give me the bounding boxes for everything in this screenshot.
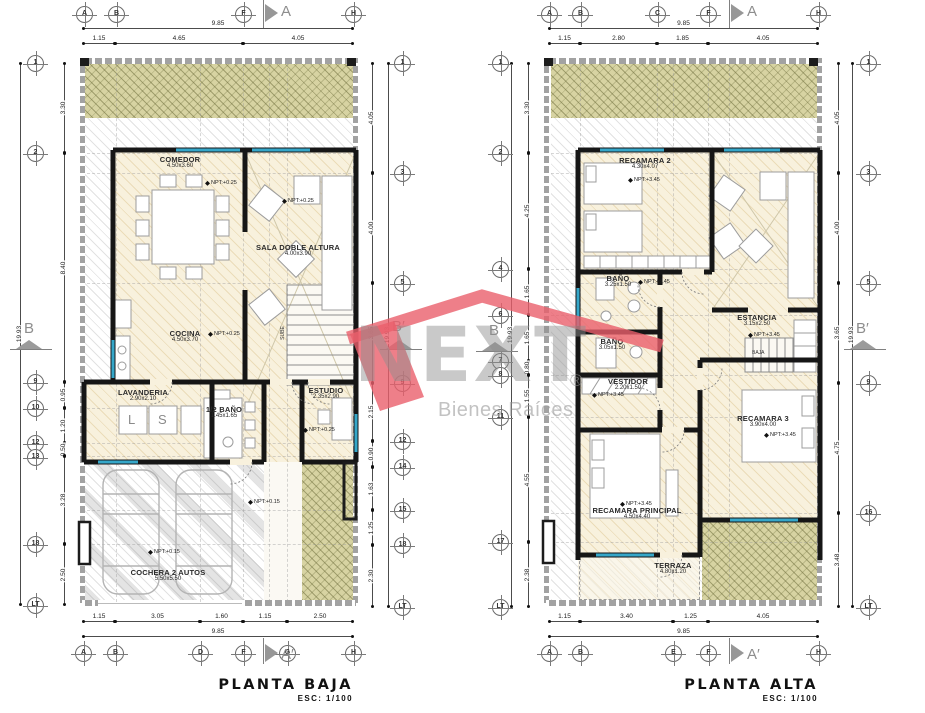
dim: 1.55 [528, 375, 529, 417]
dim: 4.05 [708, 621, 818, 622]
dim: 0.90 [372, 441, 373, 467]
room-label: COCINA4.50x3.70 [170, 329, 201, 343]
section-marker-icon [482, 342, 508, 351]
floor-plan-sheet: A B F H A B D F G H 1 2 9 10 12 13 18 LT… [0, 0, 925, 713]
dim: 3.28 [64, 456, 65, 544]
dim: 3.65 [372, 283, 373, 383]
grid-marker: LT [394, 599, 411, 616]
lot-wall-right [353, 58, 358, 606]
section-marker-icon [386, 340, 412, 349]
dim: 3.30 [528, 63, 529, 153]
grid-marker: 15 [394, 502, 411, 519]
grid-marker: A [75, 645, 92, 662]
lot-wall-left [80, 58, 85, 606]
grid-marker: 8 [492, 367, 509, 384]
dryer-label: S [158, 412, 167, 427]
dim: 9.85 [83, 636, 353, 637]
section-line [729, 638, 730, 664]
grid-marker: 12 [394, 433, 411, 450]
section-label: B [24, 320, 34, 337]
npt-marker: NPT:+3.45 [638, 278, 670, 286]
grid-marker: 1 [860, 55, 877, 72]
room-label: RECAMARA 33.90x4.00 [737, 414, 789, 428]
garage-opening [98, 603, 242, 604]
grid-marker: 2 [27, 145, 44, 162]
room-label: 1/2 BAÑO1.45x1.65 [206, 405, 242, 419]
grid-marker: H [810, 6, 827, 23]
npt-marker: NPT:+3.45 [620, 500, 652, 508]
grid-marker: 1 [492, 55, 509, 72]
grid-marker: 5 [860, 275, 877, 292]
section-label: B′ [856, 320, 869, 337]
dim: 9.85 [549, 28, 818, 29]
room-label: RECAMARA PRINCIPAL4.50x4.40 [592, 506, 681, 520]
grid-marker: D [192, 645, 209, 662]
section-marker-icon [16, 340, 42, 349]
rear-garden [302, 463, 356, 600]
grid-marker: 17 [492, 534, 509, 551]
section-label: A′ [281, 646, 294, 663]
grid-marker: LT [27, 597, 44, 614]
grid-marker: 13 [27, 449, 44, 466]
section-line [476, 351, 518, 352]
dim: 1.85 [657, 43, 708, 44]
npt-marker: NPT:+3.45 [628, 176, 660, 184]
section-marker-icon [265, 4, 278, 22]
plan-scale: ESC: 1/100 [763, 694, 818, 703]
npt-marker: NPT:+3.45 [764, 431, 796, 439]
grid-marker: 16 [860, 505, 877, 522]
grid-marker: 3 [394, 165, 411, 182]
room-label: ESTANCIA3.15x2.50 [737, 313, 776, 327]
dim: 1.25 [673, 621, 708, 622]
grid-marker: H [810, 645, 827, 662]
grid-marker: B [572, 6, 589, 23]
npt-marker: NPT:+0.15 [148, 548, 180, 556]
dim: 1.63 [372, 467, 373, 510]
dim: 2.15 [372, 383, 373, 441]
dim: 1.65 [528, 315, 529, 361]
dim: 1.20 [64, 408, 65, 443]
npt-marker: NPT:+3.45 [592, 391, 624, 399]
grid-marker: B [108, 6, 125, 23]
dim: 1.15 [243, 621, 287, 622]
lot-wall-left [544, 58, 549, 606]
grid-marker: 5 [394, 275, 411, 292]
grid-marker: A [541, 6, 558, 23]
section-line [263, 0, 264, 28]
room-label: ESTUDIO2.35x2.90 [309, 386, 344, 400]
grid-marker: B [572, 645, 589, 662]
plan-title: PLANTA BAJA [218, 677, 353, 693]
grid-marker: F [700, 6, 717, 23]
room-label: COMEDOR4.50x3.60 [160, 155, 201, 169]
dim: 2.50 [64, 544, 65, 605]
section-line [10, 349, 52, 350]
grid-marker: 14 [394, 459, 411, 476]
grid-marker: H [345, 645, 362, 662]
dim: 19.93 [511, 63, 512, 607]
grid-marker: 11 [492, 409, 509, 426]
dim: 9.85 [549, 636, 818, 637]
dim: 1.25 [372, 510, 373, 545]
dim: 3.30 [64, 63, 65, 153]
section-line [380, 349, 422, 350]
dim: 4.05 [838, 63, 839, 173]
section-label: A [281, 3, 291, 20]
grid-marker: 9 [394, 375, 411, 392]
dim: 4.00 [838, 173, 839, 283]
grid-marker: LT [860, 599, 877, 616]
plan-title: PLANTA ALTA [684, 677, 818, 693]
grid-marker: H [345, 6, 362, 23]
dim: 19.93 [20, 63, 21, 605]
stairs-label: BAJA [752, 350, 765, 356]
room-label: TERRAZA4.80x1.20 [654, 561, 691, 575]
dim: 2.50 [287, 621, 353, 622]
section-label: B′ [392, 318, 405, 335]
grid-marker: 2 [492, 145, 509, 162]
room-label: RECAMARA 24.30x4.07 [619, 156, 671, 170]
dim: 1.15 [83, 43, 115, 44]
grid-marker: 4 [492, 261, 509, 278]
section-label: A′ [747, 646, 760, 663]
lot-wall-top [82, 58, 356, 64]
room-label: SALA DOBLE ALTURA4.00x3.90 [256, 243, 340, 257]
grid-marker: B [107, 645, 124, 662]
section-marker-icon [850, 340, 876, 349]
section-label: B [489, 322, 499, 339]
dim: 0.95 [64, 382, 65, 408]
front-garden [84, 62, 354, 118]
front-garden [551, 62, 818, 118]
lot-wall-right [817, 58, 822, 606]
dim: 4.05 [372, 63, 373, 173]
section-line [844, 349, 886, 350]
section-marker-icon [731, 644, 744, 662]
dim: 4.05 [708, 43, 818, 44]
dim: 8.40 [64, 153, 65, 382]
grid-marker: F [235, 6, 252, 23]
dim: 4.05 [243, 43, 353, 44]
stairs-area [287, 285, 356, 385]
section-line [263, 638, 264, 664]
dim: 19.93 [388, 63, 389, 607]
grid-marker: A [76, 6, 93, 23]
npt-marker: NPT:+3.45 [748, 331, 780, 339]
dim: 4.75 [838, 383, 839, 513]
dim: 3.65 [838, 283, 839, 383]
lot-wall-top [546, 58, 822, 64]
washer-label: L [128, 412, 135, 427]
npt-marker: NPT:+0.25 [282, 197, 314, 205]
room-label: COCHERA 2 AUTOS5.50x5.50 [131, 568, 206, 582]
section-marker-icon [265, 644, 278, 662]
dim: 0.80 [528, 361, 529, 375]
grid-marker: E [665, 645, 682, 662]
dim: 4.25 [528, 153, 529, 269]
rear-garden [702, 522, 818, 600]
dim: 4.55 [528, 417, 529, 542]
grid-marker: 18 [27, 536, 44, 553]
npt-marker: NPT:+0.15 [248, 498, 280, 506]
dim: 1.15 [549, 621, 580, 622]
dim: 3.40 [580, 621, 673, 622]
lot-wall-bottom [546, 600, 822, 606]
grid-marker: 9 [27, 374, 44, 391]
dim: 4.65 [115, 43, 243, 44]
dim: 4.00 [372, 173, 373, 283]
dim: 3.48 [838, 513, 839, 607]
dim: 3.05 [115, 621, 200, 622]
section-marker-icon [731, 4, 744, 22]
npt-marker: NPT:+0.25 [208, 330, 240, 338]
dim: 2.30 [372, 545, 373, 607]
stairs-label: SUBE [280, 326, 286, 340]
dim: 19.93 [852, 63, 853, 607]
dim: 1.65 [528, 269, 529, 315]
npt-marker: NPT:+0.25 [205, 179, 237, 187]
grid-marker: 1 [27, 55, 44, 72]
grid-marker: 3 [860, 165, 877, 182]
dim: 1.15 [549, 43, 580, 44]
room-label: VESTIDOR2.20x1.50 [608, 377, 648, 391]
dim: 2.38 [528, 542, 529, 607]
grid-marker: 10 [27, 400, 44, 417]
dim: 1.60 [200, 621, 243, 622]
grid-marker: C [649, 6, 666, 23]
room-label: LAVANDERIA2.90x2.10 [118, 388, 168, 402]
section-line [729, 0, 730, 28]
grid-marker: LT [492, 599, 509, 616]
grid-marker: 1 [394, 55, 411, 72]
room-label: BAÑO3.25x1.50 [605, 274, 631, 288]
grid-marker: F [235, 645, 252, 662]
npt-marker: NPT:+0.25 [303, 426, 335, 434]
lot-wall-bottom [82, 600, 98, 606]
grid-marker: 18 [394, 537, 411, 554]
dim: 9.85 [83, 28, 353, 29]
section-label: A [747, 3, 757, 20]
room-label: BAÑO3.05x1.50 [599, 337, 625, 351]
grid-marker: A [541, 645, 558, 662]
plan-scale: ESC: 1/100 [298, 694, 353, 703]
dim: 2.80 [580, 43, 657, 44]
dim: 1.15 [83, 621, 115, 622]
lot-wall-bottom [242, 600, 356, 606]
grid-marker: F [700, 645, 717, 662]
grid-marker: 9 [860, 375, 877, 392]
